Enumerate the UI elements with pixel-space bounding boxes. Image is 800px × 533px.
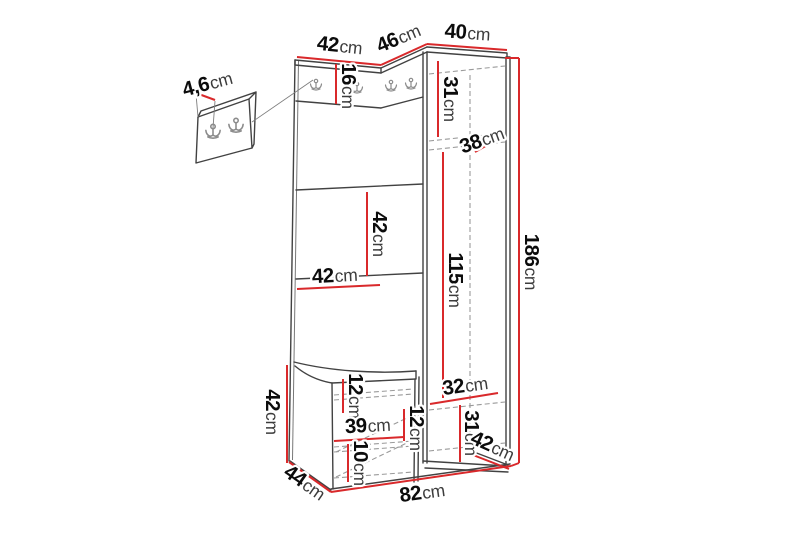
dimension-line-total-height [505,58,519,466]
left-edge [289,60,295,461]
cabinet-top-inner-hidden [429,66,505,74]
coat-hooks [311,78,417,93]
bench-bottom-hidden [334,472,413,478]
dim-label-cabinet-shelf-depth: 38cm [456,121,507,158]
dim-label-total-width: 82cm [398,478,446,507]
dim-label-shelf-width: 42cm [311,263,358,288]
dimension-line-top-width-right [427,44,507,50]
dim-label-cabinet-top-section: 31cm [439,76,462,122]
panel-face [196,99,252,163]
hook-icon [229,118,243,132]
bench-front-left-edge [332,383,333,489]
dim-label-depth-left: 44cm [279,460,330,505]
dim-label-wall-panel-thickness: 4,6cm [180,66,235,101]
dim-label-total-height: 186cm [520,234,543,290]
dim-label-bench-inner-width: 39cm [344,413,391,438]
dim-label-top-width-left: 42cm [316,32,364,60]
corner-panel [381,47,427,108]
bench-seat-top [294,362,416,372]
hook-icon [406,78,417,89]
dim-label-bench-bottom-section: 10cm [349,440,372,486]
dim-label-bench-height: 42cm [261,389,284,435]
dim-label-shelf-spacing: 42cm [368,211,391,257]
dim-label-bench-top-section: 12cm [344,373,367,419]
hook-panel-bottom-corner [381,97,423,108]
diagram-canvas: 4,6cm 42cm 46cm 40cm 16cm 31cm 38cm 42cm… [0,0,800,533]
hook-icon [386,80,397,91]
panel-thickness-edge [198,92,256,148]
dim-label-top-width-right: 40cm [444,19,491,45]
cabinet-left-edge [423,52,427,463]
dim-label-bench-middle-section: 12cm [405,405,428,451]
cabinet-right-edge [506,57,510,465]
dim-label-cabinet-inner-height: 115cm [444,252,467,307]
shelf-line-1 [296,184,423,190]
dim-label-hook-panel-height: 16cm [337,63,360,109]
bench-shelf-2-hidden [334,441,413,452]
